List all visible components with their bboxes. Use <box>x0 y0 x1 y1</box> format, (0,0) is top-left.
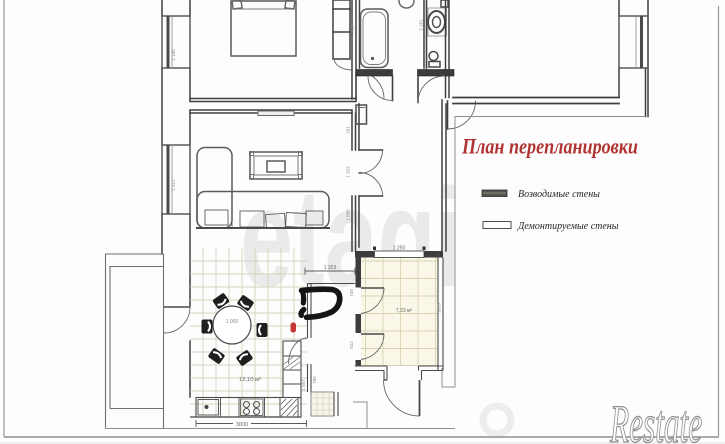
svg-text:3000: 3000 <box>236 422 248 428</box>
svg-text:1 517: 1 517 <box>171 179 176 191</box>
svg-text:1 000: 1 000 <box>226 319 239 325</box>
svg-text:1 057: 1 057 <box>301 379 306 391</box>
svg-text:Возводимые стены: Возводимые стены <box>518 189 600 200</box>
svg-text:2 190: 2 190 <box>171 49 176 61</box>
svg-text:1 250: 1 250 <box>393 246 406 252</box>
svg-text:2 161: 2 161 <box>419 19 424 31</box>
svg-text:1670: 1670 <box>437 302 442 313</box>
svg-text:1 080: 1 080 <box>346 209 351 221</box>
svg-text:761: 761 <box>346 126 351 134</box>
svg-text:Restate: Restate <box>609 394 702 444</box>
svg-text:Демонтируемые стены: Демонтируемые стены <box>517 221 619 232</box>
svg-text:7,33 м²: 7,33 м² <box>396 308 413 314</box>
svg-text:1 323: 1 323 <box>346 166 351 178</box>
svg-text:План перепланировки: План перепланировки <box>461 134 638 159</box>
svg-text:748: 748 <box>349 289 354 297</box>
svg-text:1 323: 1 323 <box>324 265 337 271</box>
svg-text:522: 522 <box>349 341 354 349</box>
svg-text:706: 706 <box>312 376 317 384</box>
svg-text:12,10 м²: 12,10 м² <box>239 377 261 383</box>
svg-text:2 150: 2 150 <box>350 22 355 34</box>
